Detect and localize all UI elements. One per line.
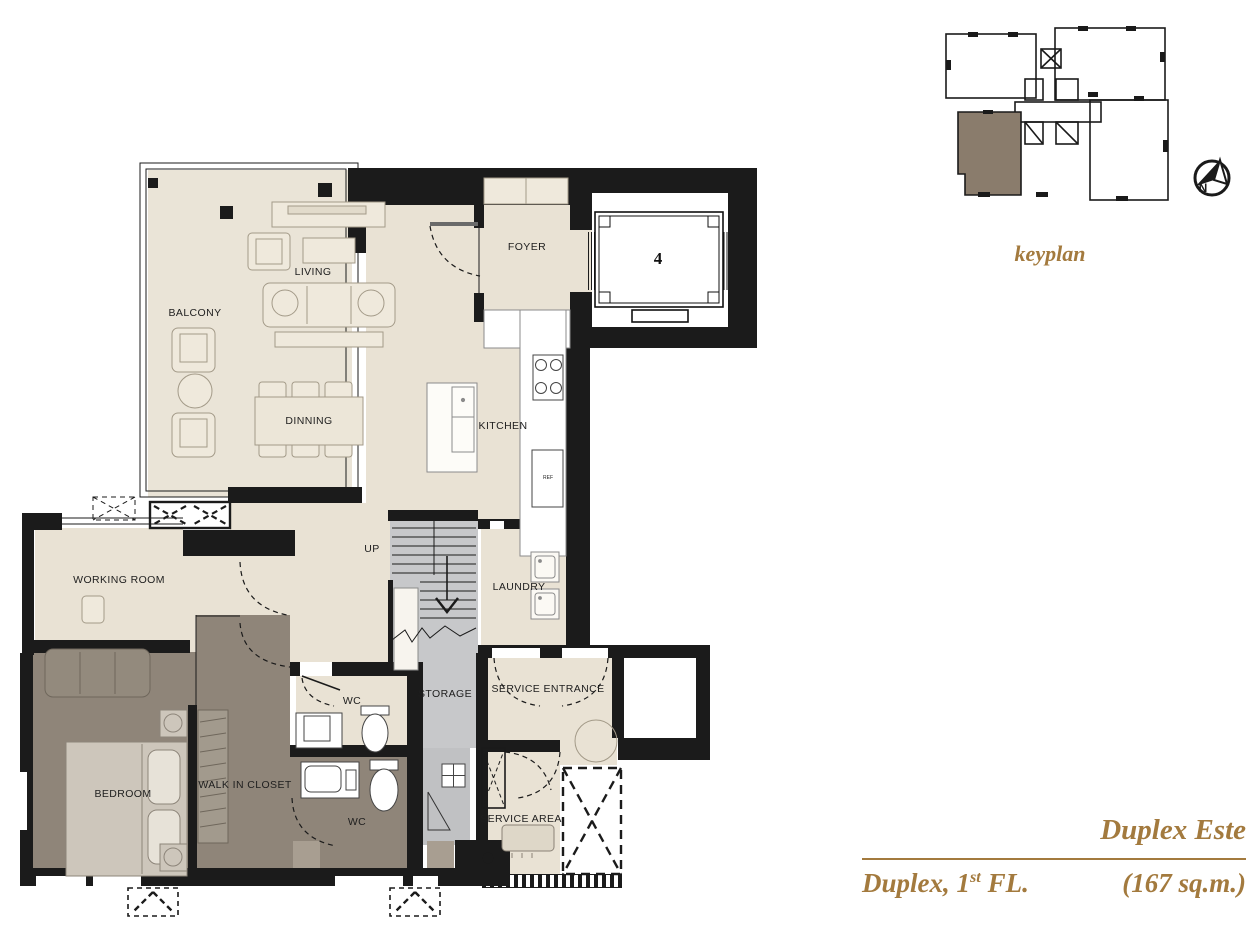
room-label-dinning: DINNING (285, 415, 332, 427)
keyplan-caption: keyplan (1015, 241, 1086, 267)
area-label: (167 sq.m.) (1122, 868, 1246, 899)
room-label-living: LIVING (295, 266, 332, 278)
room-label-wc-lower: WC (348, 816, 366, 828)
floor-label: Duplex, 1st FL. (862, 868, 1029, 899)
room-label-foyer: FOYER (508, 241, 546, 253)
room-label-up: UP (364, 543, 379, 555)
room-label-laundry: LAUNDRY (493, 581, 546, 593)
refrigerator-label: REF (543, 475, 553, 481)
title-divider (862, 858, 1246, 860)
unit-name: Duplex Este (862, 814, 1246, 846)
room-label-working-room: WORKING ROOM (73, 574, 165, 586)
keyplan-drawing (946, 26, 1168, 201)
elevator-number: 4 (654, 249, 663, 269)
room-label-walk-in-closet: WALK IN CLOSET (198, 779, 291, 791)
room-label-wc-upper: WC (343, 695, 361, 707)
title-block: Duplex Este Duplex, 1st FL. (167 sq.m.) (862, 814, 1246, 899)
floorplan-page: BALCONY LIVING DINNING FOYER KITCHEN WOR… (0, 0, 1250, 938)
room-label-bedroom: BEDROOM (94, 788, 151, 800)
floorplan-drawing (0, 0, 1250, 938)
room-label-balcony: BALCONY (169, 307, 222, 319)
north-letter: N (1199, 181, 1208, 195)
room-label-storage: STORAGE (418, 688, 472, 700)
room-label-kitchen: KITCHEN (479, 420, 528, 432)
room-label-service-area: SERVICE AREA (480, 813, 562, 825)
room-label-service-entrance: SERVICE ENTRANCE (492, 683, 605, 695)
